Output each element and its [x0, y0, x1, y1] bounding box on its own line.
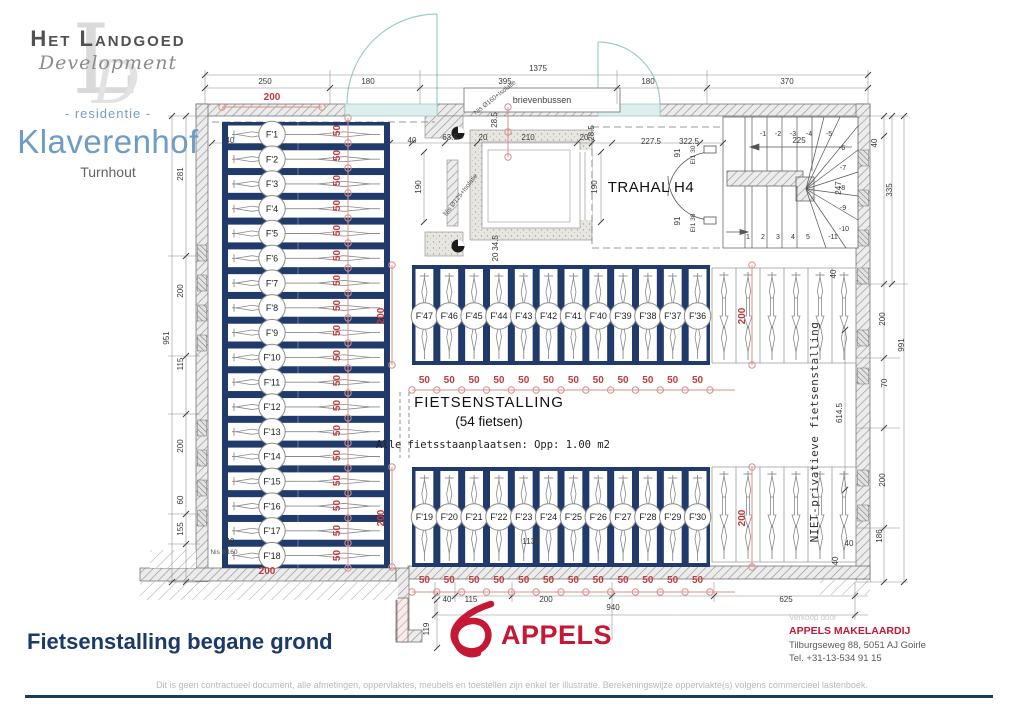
dim-label: 200: [878, 312, 887, 326]
stall-label: F'44: [490, 311, 507, 321]
stall-label: F'37: [664, 311, 681, 321]
red-dim-50: 50: [332, 450, 343, 462]
stair-step-label: 1: [746, 234, 750, 241]
agency-phone: Tel. +31-13-534 91 15: [789, 653, 882, 664]
door-rating-label: EI1 30: [690, 213, 697, 232]
stair-step-label: -4: [806, 131, 812, 138]
stall-label: F'1: [266, 130, 278, 140]
dim-label: 40: [408, 136, 417, 145]
stair-step-label: -2: [775, 131, 781, 138]
dim-label: 91: [673, 148, 682, 157]
dim-label: 200: [176, 439, 185, 453]
red-dim-50: 50: [332, 325, 343, 337]
stair-step-label: 2: [761, 234, 765, 241]
stair-step-label: -9: [840, 205, 846, 212]
red-dim-50: 50: [468, 575, 480, 586]
room-subtitle: (54 fietsen): [455, 414, 523, 429]
stair-step-label: 4: [791, 234, 795, 241]
stall-label: F'19: [416, 512, 433, 522]
red-dim-50: 50: [617, 575, 629, 586]
stall-label: F'40: [590, 311, 607, 321]
dim-label: 119: [422, 622, 431, 635]
red-dim-50: 50: [642, 575, 654, 586]
red-dim-50: 50: [593, 575, 605, 586]
dim-label: 186: [875, 529, 884, 543]
hall-label: TRAHAL H4: [608, 179, 694, 196]
project-city: Turnhout: [0, 164, 216, 180]
stall-label: F'21: [465, 512, 482, 522]
red-dim-50: 50: [332, 275, 343, 287]
stall-label: F'4: [266, 204, 278, 214]
stall-label: F'15: [263, 476, 280, 486]
disclaimer-text: Dit is geen contractueel document, alle …: [0, 680, 1024, 690]
dim-label: 614.5: [835, 402, 844, 423]
red-dim-label: 200: [737, 509, 748, 526]
red-dim-50: 50: [332, 350, 343, 362]
stall-label: F'36: [689, 311, 706, 321]
stall-label: F'23: [515, 512, 532, 522]
red-dim-50: 50: [642, 375, 654, 386]
red-dim-50: 50: [332, 475, 343, 487]
stall-block-top: F'47F'46F'45F'44F'43F'42F'41F'40F'39F'38…: [411, 265, 711, 365]
red-dim-50: 50: [518, 575, 530, 586]
dim-label: 40: [831, 556, 840, 565]
dim-label: 28.5: [490, 112, 499, 128]
dim-label: 70: [880, 378, 889, 387]
stair-step-label: -6: [839, 145, 845, 152]
nis-label: Nis Ø160: [210, 549, 237, 556]
room-title: FIETSENSTALLING: [414, 394, 564, 411]
red-dim-50: 50: [493, 575, 505, 586]
mailbox-label: brievenbussen: [513, 95, 572, 105]
red-dim-50: 50: [332, 400, 343, 412]
stall-label: F'41: [565, 311, 582, 321]
red-dim-50: 50: [493, 375, 505, 386]
dim-label: 250: [258, 77, 272, 86]
stall-label: F'11: [264, 377, 281, 387]
red-dim-50: 50: [332, 200, 343, 212]
stall-label: F'8: [266, 303, 278, 313]
dim-label: 34.5: [491, 235, 500, 251]
red-dim-50: 50: [332, 300, 343, 312]
stall-label: F'43: [515, 311, 532, 321]
dim-label: 63.5: [442, 133, 458, 142]
dim-label: 210: [521, 133, 535, 142]
red-dim-label: 200: [264, 92, 281, 103]
stall-label: F'47: [416, 311, 433, 321]
dim-label: 40: [829, 269, 838, 278]
dim-label: 1375: [529, 64, 547, 73]
stall-label: F'2: [266, 154, 278, 164]
stall-block-left: F'1F'2F'3F'4F'5F'6F'7F'8F'9F'10F'11F'12F…: [222, 121, 390, 569]
red-dim-50: 50: [332, 425, 343, 437]
branding-block: L D Het Landgoed Development - residenti…: [0, 26, 216, 180]
project-name: Klaverenhof: [0, 123, 216, 161]
stall-label: F'13: [263, 427, 280, 437]
dim-label: 335: [885, 183, 894, 197]
stall-label: F'18: [263, 551, 280, 561]
dim-label: 200: [539, 595, 553, 604]
red-dim-50: 50: [692, 375, 704, 386]
stall-label: F'7: [266, 278, 278, 288]
red-dim-50: 50: [332, 550, 343, 562]
dim-label: 322.5: [679, 137, 700, 146]
stall-label: F'6: [266, 253, 278, 263]
stair-step-label: 5: [806, 234, 810, 241]
dim-label: 940: [606, 603, 620, 612]
red-dim-50: 50: [667, 375, 679, 386]
dim-label: 370: [780, 77, 794, 86]
dim-label: 200: [878, 473, 887, 487]
stall-label: F'42: [540, 311, 557, 321]
red-dim-50: 50: [692, 575, 704, 586]
stall-label: F'38: [639, 311, 656, 321]
red-dim-50: 50: [468, 375, 480, 386]
red-dim-50: 50: [332, 500, 343, 512]
stall-label: F'29: [664, 512, 681, 522]
stair-step-label: -5: [826, 131, 832, 138]
private-stalls-label: NIET-privatieve fietsenstalling: [808, 322, 821, 543]
footer-divider: [25, 695, 993, 698]
dim-label: 28.5: [587, 125, 596, 141]
stall-label: F'28: [639, 512, 656, 522]
red-dim-50: 50: [332, 175, 343, 187]
agency-name: APPELS MAKELAARDIJ: [789, 625, 910, 637]
stall-label: F'24: [540, 512, 557, 522]
red-dim-label: 200: [259, 566, 276, 577]
red-dim-label: 200: [737, 307, 748, 324]
dim-label: 190: [414, 180, 423, 194]
stall-label: F'45: [465, 311, 482, 321]
red-dim-label: 200: [376, 307, 387, 324]
stall-label: F'39: [614, 311, 631, 321]
red-dim-50: 50: [518, 375, 530, 386]
stall-label: F'10: [263, 353, 280, 363]
stair-step-label: -7: [840, 165, 846, 172]
stall-label: F'17: [263, 526, 280, 536]
appels-logo-icon: [441, 598, 505, 664]
stall-label: F'26: [590, 512, 607, 522]
company-name: Het Landgoed: [0, 26, 216, 52]
stair-step-label: -3: [790, 131, 796, 138]
dim-label: 180: [641, 77, 655, 86]
red-dim-50: 50: [419, 375, 431, 386]
red-dim-50: 50: [543, 375, 555, 386]
stall-label: F'46: [441, 311, 458, 321]
dim-label: 180: [361, 77, 375, 86]
red-dim-label: 200: [376, 509, 387, 526]
stall-block-bottom: F'19F'20F'21F'22F'23F'24F'25F'26F'27F'28…: [411, 467, 711, 567]
dim-label: 91: [673, 216, 682, 225]
red-dim-50: 50: [332, 375, 343, 387]
dim-label: 40: [870, 138, 879, 147]
stall-label: F'5: [266, 229, 278, 239]
dim-label: 991: [897, 338, 906, 352]
stall-label: F'16: [263, 501, 280, 511]
stall-label: F'3: [266, 179, 278, 189]
dim-label: 190: [590, 180, 599, 194]
red-dim-50: 50: [444, 375, 456, 386]
stair-step-label: -8: [839, 185, 845, 192]
dim-label: 155: [176, 522, 185, 536]
dim-label: 40: [226, 537, 235, 546]
agency-address: Tilburgseweg 88, 5051 AJ Goirle: [789, 640, 926, 651]
red-dim-50: 50: [667, 575, 679, 586]
dim-label: 200: [176, 284, 185, 298]
stair-step-label: 3: [776, 234, 780, 241]
red-dim-50: 50: [444, 575, 456, 586]
dim-label: 115: [176, 357, 185, 370]
dim-label: 40: [226, 136, 235, 145]
stall-label: F'14: [263, 452, 280, 462]
red-dim-50: 50: [568, 375, 580, 386]
stall-label: F'30: [689, 512, 706, 522]
verkoop-door-label: Verkoop door: [789, 613, 837, 622]
appels-logo-text: APPELS: [501, 620, 612, 651]
stall-label: F'20: [441, 512, 458, 522]
dim-label: 60: [176, 495, 185, 504]
red-dim-50: 50: [419, 575, 431, 586]
red-dim-50: 50: [332, 225, 343, 237]
dim-label: 227.5: [641, 137, 662, 146]
dim-label: 951: [162, 331, 171, 345]
stair-step-label: -1: [760, 131, 766, 138]
dim-label: 625: [779, 595, 793, 604]
red-dim-50: 50: [543, 575, 555, 586]
red-dim-50: 50: [617, 375, 629, 386]
red-dim-50: 50: [568, 575, 580, 586]
stall-label: F'25: [565, 512, 582, 522]
red-dim-50: 50: [332, 125, 343, 137]
stall-label: F'27: [614, 512, 631, 522]
red-dim-50: 50: [332, 150, 343, 162]
stall-label: F'12: [263, 402, 280, 412]
stall-label: F'9: [266, 328, 278, 338]
stair-step-label: -10: [839, 226, 849, 233]
red-dim-50: 50: [332, 525, 343, 537]
room-note: Alle fietsstaanplaatsen: Opp: 1.00 m2: [376, 439, 610, 451]
dim-label: 20: [479, 133, 488, 142]
dim-label: 1135: [522, 537, 540, 546]
red-dim-50: 50: [593, 375, 605, 386]
door-rating-label: EI1 30: [690, 145, 697, 164]
stair-step-label: -11: [828, 234, 838, 241]
dim-label: 40: [845, 539, 854, 548]
red-dim-50: 50: [332, 250, 343, 262]
sheet-title: Fietsenstalling begane grond: [27, 629, 333, 655]
stall-label: F'22: [490, 512, 507, 522]
dim-label: 20: [491, 252, 500, 261]
drawing-sheet: F'1F'2F'3F'4F'5F'6F'7F'8F'9F'10F'11F'12F…: [0, 0, 1024, 724]
company-tagline: Development: [0, 52, 216, 74]
